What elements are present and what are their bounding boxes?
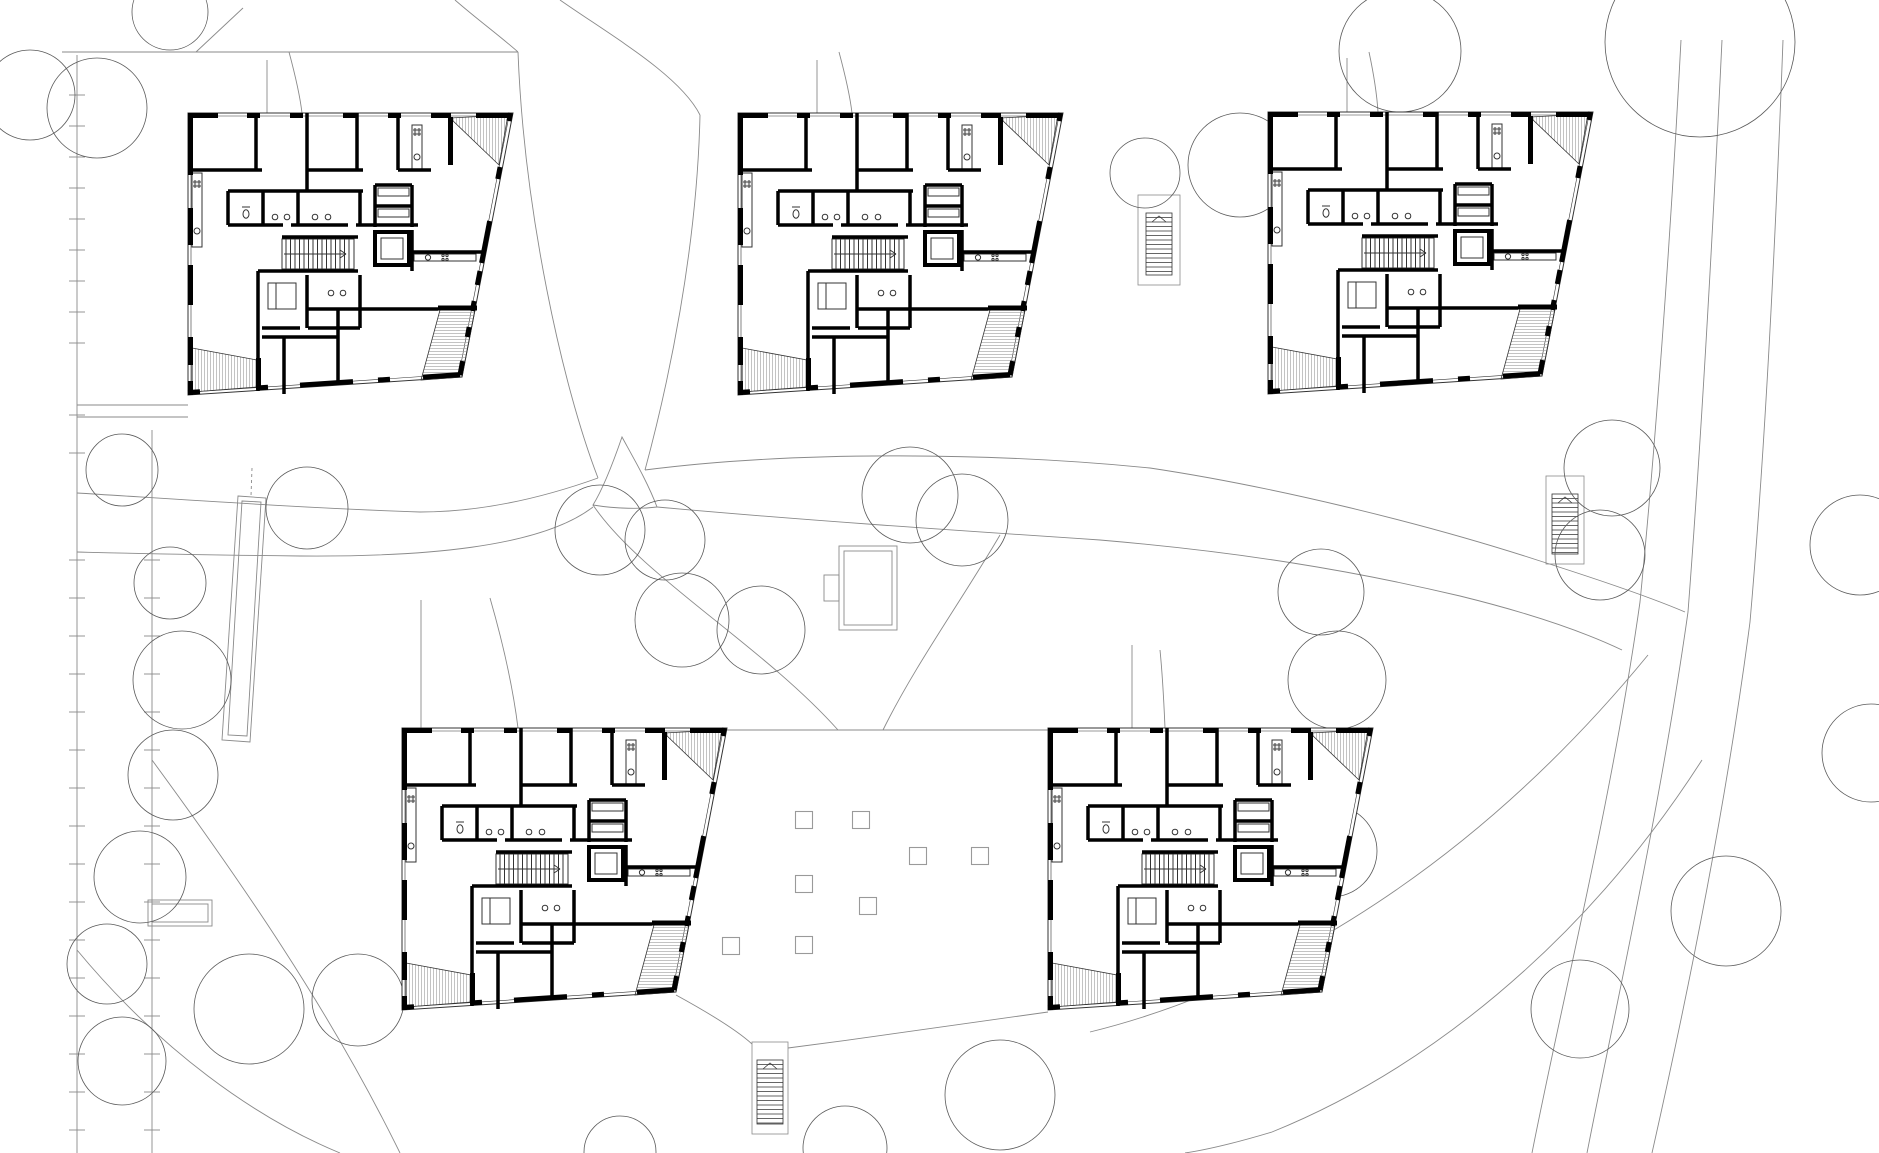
tree-circle — [1278, 549, 1364, 635]
tree-circle — [862, 447, 958, 543]
site-path — [289, 52, 302, 113]
exterior-wall-segment — [1336, 386, 1348, 387]
tree-circle — [625, 500, 705, 580]
shelter-inner-line — [152, 904, 208, 922]
exterior-wall-segment — [723, 728, 725, 736]
exterior-wall-segment — [738, 392, 750, 393]
pavilion-outline — [839, 546, 897, 630]
exterior-wall-segment — [509, 113, 511, 121]
exterior-wall-segment — [674, 976, 677, 990]
pavilion-tab — [824, 575, 839, 601]
site-path — [657, 507, 1622, 650]
site-path — [1160, 650, 1165, 728]
plaza-paver-square — [860, 898, 877, 915]
exterior-wall-segment — [686, 916, 688, 926]
exterior-wall-segment — [1369, 728, 1371, 736]
exterior-wall-segment — [1010, 361, 1013, 375]
exterior-wall-segment — [1022, 301, 1024, 311]
site-plan-canvas — [0, 0, 1879, 1153]
stair-direction-arrow — [1152, 216, 1166, 222]
shelter — [148, 900, 212, 926]
outdoor-stair — [1138, 195, 1180, 285]
plaza-paver-square — [796, 937, 813, 954]
outdoor-stair-enclosure — [752, 1042, 788, 1134]
plaza-edge — [676, 995, 752, 1044]
exterior-wall-segment — [1268, 391, 1280, 392]
exterior-wall-segment — [1327, 942, 1329, 952]
building-1 — [188, 113, 513, 395]
site-path — [839, 52, 852, 113]
plaza-paver-square — [910, 848, 927, 865]
site-path — [455, 0, 518, 52]
exterior-wall-segment — [1059, 113, 1061, 121]
tree-circle — [1339, 0, 1461, 112]
building-3 — [1268, 112, 1593, 394]
exterior-wall-segment — [477, 271, 480, 285]
exterior-wall-segment — [637, 990, 674, 992]
exterior-wall-segment — [300, 382, 353, 385]
exterior-wall-segment — [188, 392, 200, 393]
tree-circle — [1110, 138, 1180, 208]
exterior-wall-segment — [467, 327, 469, 337]
tree-circle — [312, 954, 404, 1046]
exterior-wall-segment — [1283, 990, 1320, 992]
plaza-paver-square — [853, 812, 870, 829]
tree-circle — [133, 631, 231, 729]
exterior-wall-segment — [1238, 994, 1250, 995]
pavilion-inner-line — [844, 551, 892, 625]
exterior-wall-segment — [592, 994, 604, 995]
exterior-wall-segment — [472, 301, 474, 311]
site-path — [77, 950, 340, 1153]
exterior-wall-segment — [1160, 997, 1213, 1000]
site-path — [490, 598, 518, 728]
exterior-wall-segment — [402, 1007, 414, 1008]
exterior-wall-segment — [1320, 976, 1323, 990]
tree-circle — [86, 434, 158, 506]
site-path — [645, 115, 700, 470]
pavilion — [824, 546, 897, 630]
site-path — [560, 0, 700, 115]
exterior-wall-segment — [1116, 1002, 1128, 1003]
exterior-wall-segment — [1048, 1007, 1060, 1008]
site-path — [593, 505, 838, 730]
site-plan — [0, 0, 1879, 1153]
exterior-wall-segment — [1048, 167, 1050, 179]
exterior-wall-segment — [378, 379, 390, 380]
parking-road — [69, 55, 160, 1153]
exterior-wall-segment — [1337, 886, 1340, 900]
plaza-paver-square — [972, 848, 989, 865]
exterior-wall-segment — [423, 375, 460, 377]
exterior-wall-segment — [1332, 916, 1334, 926]
exterior-wall-segment — [1540, 360, 1543, 374]
exterior-wall-segment — [1578, 166, 1580, 178]
tree-circle — [1555, 510, 1645, 600]
exterior-wall-segment — [514, 997, 567, 1000]
site-path — [518, 52, 598, 478]
plaza-paver-square — [796, 812, 813, 829]
tree-circle — [134, 547, 206, 619]
exterior-wall-segment — [806, 387, 818, 388]
exterior-wall-segment — [1358, 782, 1360, 794]
exterior-wall-segment — [460, 361, 463, 375]
exterior-wall-segment — [1503, 374, 1540, 376]
plaza-edge — [788, 1012, 1048, 1048]
pool-steps-dashed — [251, 468, 252, 496]
tree-circle — [194, 954, 304, 1064]
tree-circle — [1531, 960, 1629, 1058]
outdoor-stair — [752, 1042, 788, 1134]
stair-direction-arrow — [1558, 497, 1572, 503]
site-path — [1369, 52, 1378, 112]
exterior-wall-segment — [1552, 300, 1554, 310]
building-2 — [738, 113, 1063, 395]
pool — [222, 468, 266, 742]
exterior-wall-segment — [256, 387, 268, 388]
exterior-wall-segment — [1458, 378, 1470, 379]
tree-circle — [1671, 856, 1781, 966]
tree-circle — [1288, 631, 1386, 729]
site-path — [152, 760, 400, 1153]
building-4 — [402, 728, 727, 1010]
tree-circle — [94, 831, 186, 923]
site-path — [883, 535, 1000, 730]
site-path — [593, 437, 657, 508]
tree-circle — [128, 730, 218, 820]
exterior-wall-segment — [712, 782, 714, 794]
exterior-wall-segment — [681, 942, 683, 952]
building-5 — [1048, 728, 1373, 1010]
tree-circle — [1564, 420, 1660, 516]
site-path — [77, 507, 593, 556]
tree-circle — [916, 474, 1008, 566]
tree-circle — [717, 586, 805, 674]
site-path — [645, 456, 1685, 612]
tree-circle — [584, 1116, 656, 1153]
tree-circle — [47, 58, 147, 158]
plaza — [676, 730, 1048, 1048]
tree-circle — [67, 924, 147, 1004]
exterior-wall-segment — [691, 886, 694, 900]
tree-circle — [945, 1040, 1055, 1150]
exterior-wall-segment — [1547, 326, 1549, 336]
exterior-wall-segment — [470, 1002, 482, 1003]
exterior-wall-segment — [1557, 270, 1560, 284]
exterior-wall-segment — [498, 167, 500, 179]
exterior-wall-segment — [928, 379, 940, 380]
plaza-paver-square — [723, 938, 740, 955]
exterior-wall-segment — [1589, 112, 1591, 120]
tree-circle — [1822, 704, 1879, 802]
exterior-wall-segment — [1017, 327, 1019, 337]
tree-circle — [132, 0, 208, 50]
exterior-wall-segment — [1380, 381, 1433, 384]
site-path — [1587, 40, 1722, 1153]
plaza-paver-square — [796, 876, 813, 893]
tree-circle — [803, 1106, 887, 1153]
tree-circle — [1810, 495, 1879, 595]
exterior-wall-segment — [973, 375, 1010, 377]
exterior-wall-segment — [1027, 271, 1030, 285]
exterior-wall-segment — [850, 382, 903, 385]
stair-direction-arrow — [763, 1063, 777, 1069]
tree-circle — [1605, 0, 1795, 137]
tree-circle — [0, 50, 75, 140]
outdoor-stair — [1546, 476, 1584, 564]
pool-inner-line — [228, 501, 261, 736]
